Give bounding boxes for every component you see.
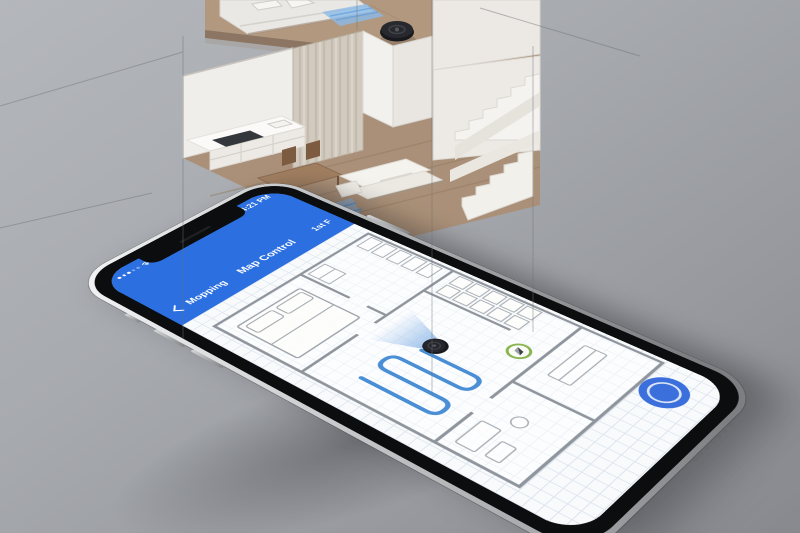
scene: 4:21 PM Mopping Map Control 1st F	[0, 0, 800, 533]
hall-wall	[363, 31, 433, 127]
chevron-left-icon	[173, 305, 184, 312]
floor-selector[interactable]: 1st F	[294, 218, 335, 240]
signal-dots-icon	[115, 260, 154, 281]
curtains	[293, 31, 363, 168]
notch-speaker	[179, 226, 212, 244]
